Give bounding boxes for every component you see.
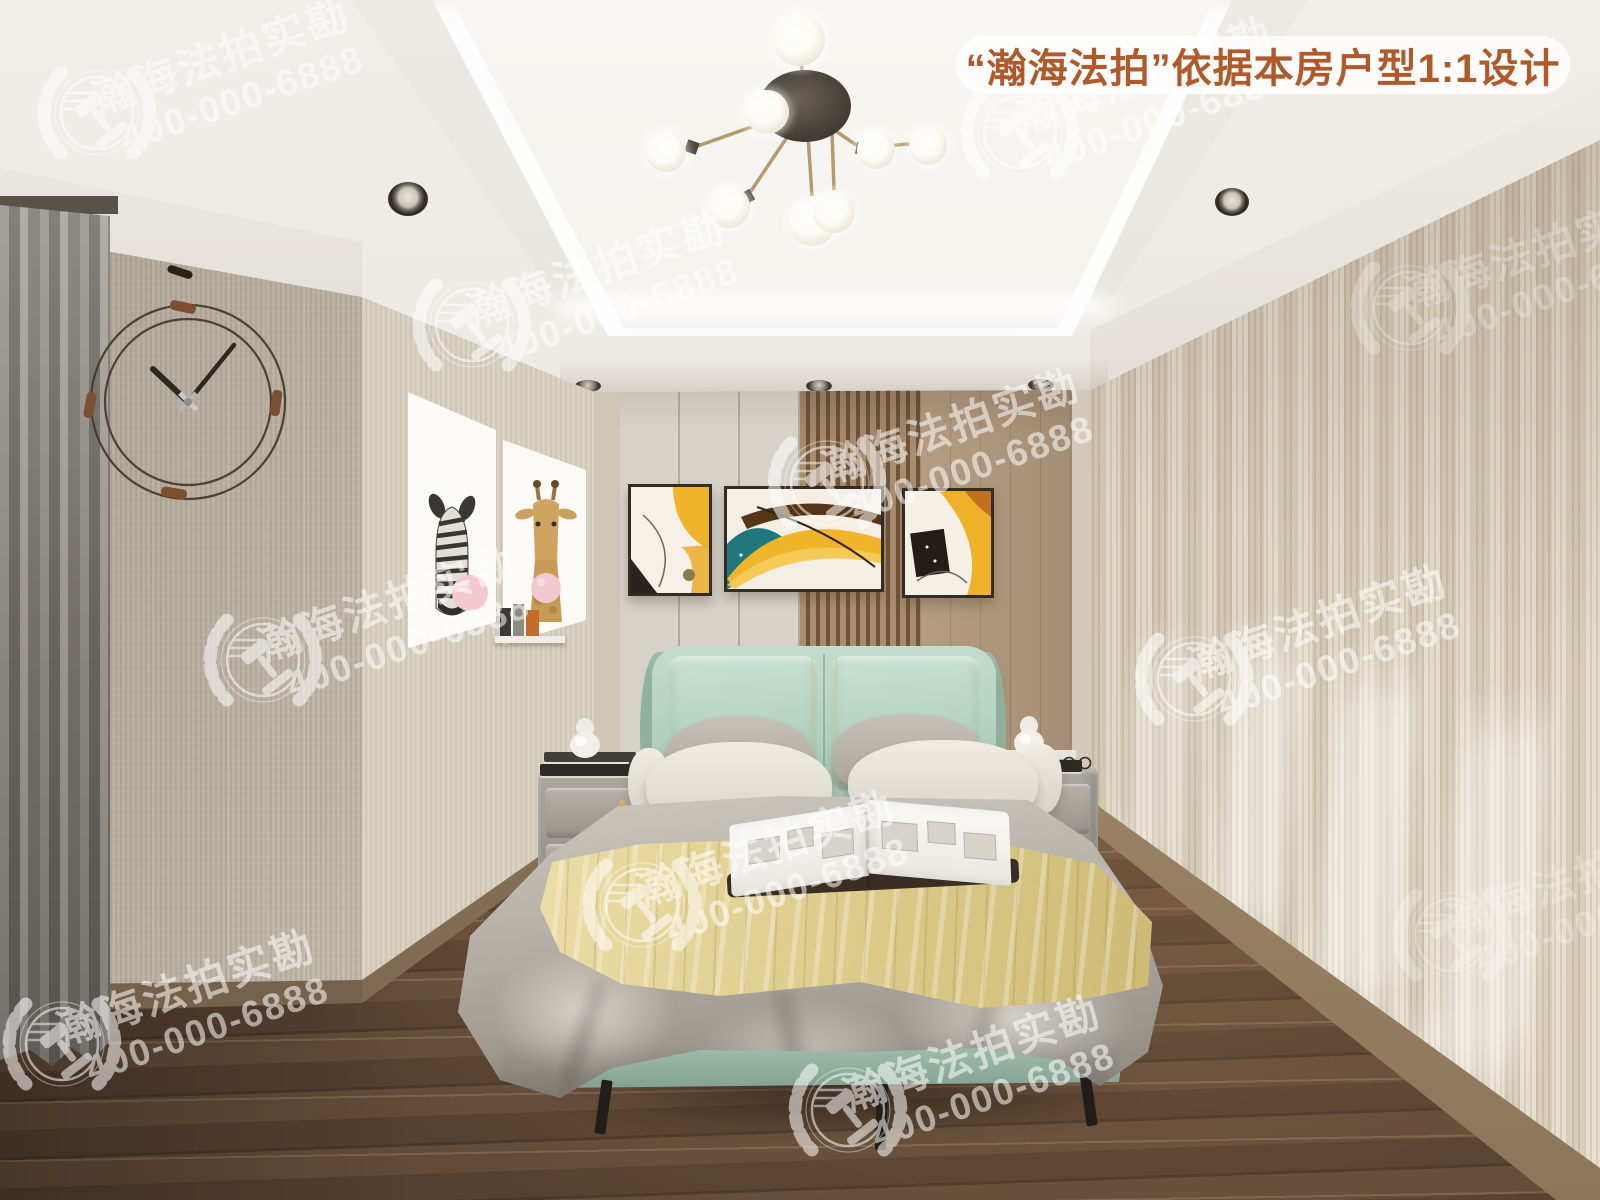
shelf-book: [526, 610, 539, 636]
book-stack: [540, 764, 642, 776]
shelf-book: [513, 604, 524, 636]
spotlight-left: [388, 182, 428, 216]
chandelier: [600, 0, 960, 255]
cove-light-strip: [560, 296, 1108, 316]
painting-abstract-left: [628, 484, 712, 596]
open-book: [728, 793, 1021, 903]
book-page-right: [866, 800, 1011, 886]
shelf-board: [495, 636, 565, 643]
promo-banner-text: “瀚海法拍”依据本房户型1:1设计: [966, 36, 1561, 94]
painting-abstract-center: [724, 486, 884, 592]
painting-abstract-right: [902, 488, 994, 598]
ceiling-back-shadow: [560, 358, 1108, 392]
bed-leg: [875, 1084, 888, 1150]
glasses: [1062, 756, 1096, 770]
gourd-lamp: [566, 714, 604, 758]
spotlight-back-3: [1028, 379, 1054, 391]
shelf-book: [500, 608, 511, 636]
spotlight-back-2: [806, 380, 832, 392]
print-zebra: [408, 392, 496, 648]
bedroom-photo: 瀚海法拍实勘 400-000-6888 瀚海法拍实勘 400-000-6888 …: [0, 0, 1600, 1200]
promo-banner: “瀚海法拍”依据本房户型1:1设计: [956, 36, 1570, 94]
spotlight-right: [1215, 188, 1249, 216]
wall-clock: [75, 256, 301, 514]
